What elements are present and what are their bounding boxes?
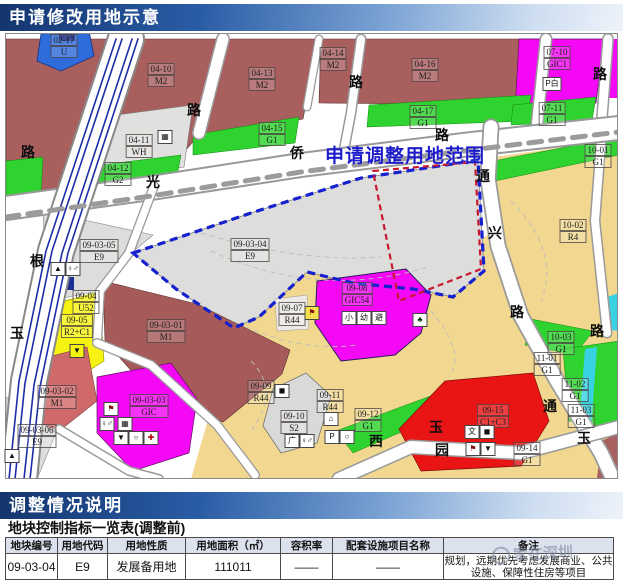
section-title-bar: 调整情况说明 [0,492,623,519]
table-header-row: 地块编号用地代码用地性质用地面积（㎡）容积率配套设施项目名称备注 [6,538,614,554]
cell-far: —— [281,554,333,580]
section-title: 调整情况说明 [9,496,123,515]
parcel-0907 [275,295,309,331]
table-header-cell: 容积率 [281,538,333,554]
table-header-cell: 用地性质 [108,538,186,554]
table-header-cell: 用地代码 [58,538,108,554]
parcel-u-navy-square [59,34,75,41]
table-header-cell: 配套设施项目名称 [333,538,444,554]
table-header-cell: 用地面积（㎡） [186,538,281,554]
cell-code: E9 [58,554,108,580]
cell-area: 111011 [186,554,281,580]
cell-plot-no: 09-03-04 [6,554,58,580]
table-header-cell: 地块编号 [6,538,58,554]
page: 申请修改用地示意 [0,0,623,582]
planning-map-svg [6,34,617,478]
page-title-bar: 申请修改用地示意 [0,4,623,31]
cell-remark: 规划，远期优先考虑发展商业、公共设施、保障性住房等项目 [444,554,614,580]
plot-indicator-table: 地块编号用地代码用地性质用地面积（㎡）容积率配套设施项目名称备注 09-03-0… [5,537,614,580]
table-row: 09-03-04 E9 发展备用地 111011 —— —— 规划，远期优先考虑… [6,554,614,580]
cell-nature: 发展备用地 [108,554,186,580]
page-title: 申请修改用地示意 [9,8,161,27]
table-header-cell: 备注 [444,538,614,554]
cell-facilities: —— [333,554,444,580]
table-title: 地块控制指标一览表(调整前) [8,518,185,538]
planning-map: 申请调整用地范围 02-17U04-10M204-13M204-14M204-1… [5,33,618,479]
